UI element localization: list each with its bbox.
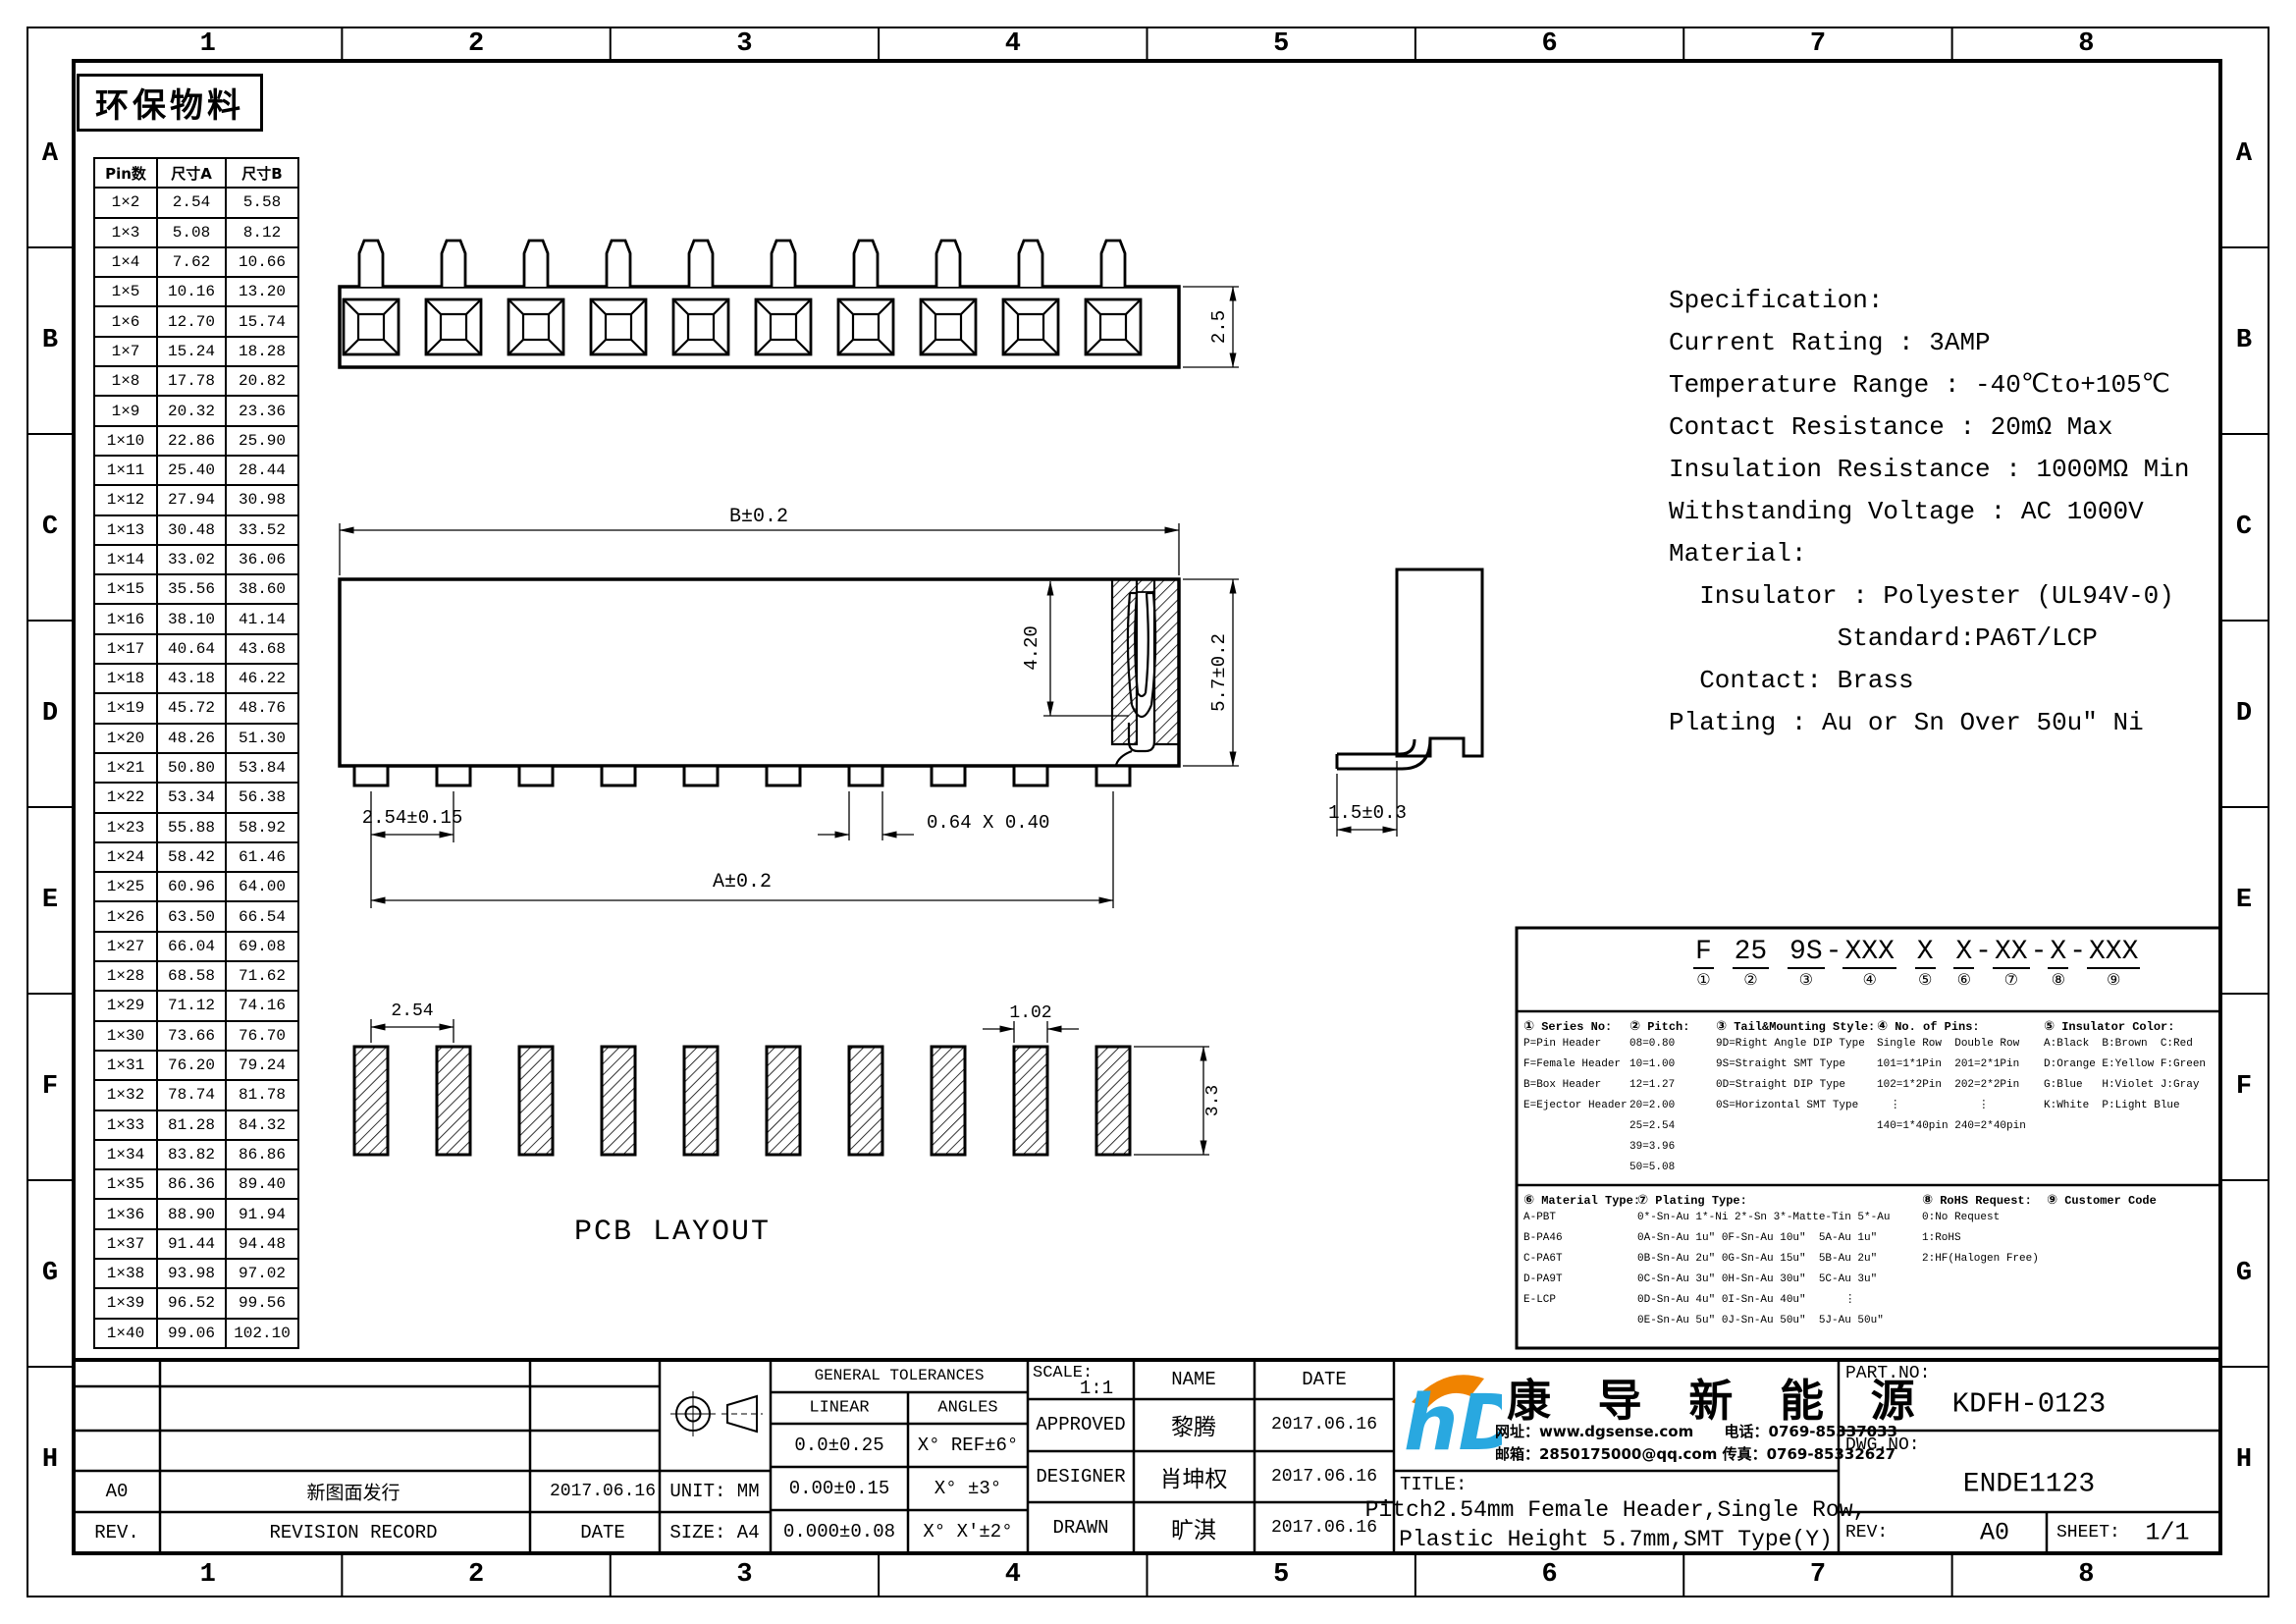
legend-line: 101=1*1Pin 201=2*1Pin [1877,1055,2026,1075]
table-cell: 83.82 [157,1140,226,1169]
legend-line: 20=2.00 [1629,1096,1689,1116]
unit-cell: UNIT: MM [669,1481,759,1502]
dim-pcb-pitch: 2.54 [391,1001,433,1021]
dim-pcb-pad-height: 3.3 [1203,1085,1223,1116]
zone-col-label: 3 [736,29,752,59]
legend-line: 0D=Straight DIP Type [1716,1075,1875,1096]
rev-label: REV: [1845,1523,1888,1543]
code-separator [1936,937,1954,967]
table-cell: 27.94 [157,485,226,514]
table-row: 1×3791.4494.48 [94,1229,298,1259]
table-cell: 53.34 [157,783,226,812]
linear-tolerance: 0.00±0.15 [789,1478,890,1499]
zone-col-label: 8 [2078,1560,2094,1590]
table-cell: 41.14 [226,604,298,633]
projection-symbol-icon [670,1391,763,1436]
rev-date-header: DATE [580,1522,625,1543]
pin-post [359,241,383,287]
dwg-no-value: ENDE1123 [1963,1470,2095,1500]
table-cell: 81.28 [157,1110,226,1140]
table-cell: 1×24 [94,842,157,872]
dwg-no-label: DWG.NO: [1845,1435,1920,1455]
table-cell: 46.22 [226,664,298,693]
circled-number-icon: ⑦ [1637,1193,1648,1208]
spec-line: Contact Resistance : 20mΩ Max [1669,406,2190,449]
pin-post [442,241,465,287]
table-cell: 78.74 [157,1080,226,1110]
table-cell: 88.90 [157,1199,226,1228]
linear-tolerance: 0.0±0.25 [794,1435,883,1456]
code-segment: X⑥ [1953,937,1974,989]
table-cell: 15.74 [226,306,298,336]
legend-section: ⑧ RoHS Request:0:No Request1:RoHS2:HF(Ha… [1922,1193,2039,1270]
zone-col-label: 7 [1810,1560,1826,1590]
table-cell: 1×20 [94,724,157,753]
table-cell: 5.58 [226,188,298,217]
table-row: 1×3893.9897.02 [94,1259,298,1288]
table-row: 1×1638.1041.14 [94,604,298,633]
code-segment-mark: ⑨ [2107,970,2120,989]
dim-front-depth: 4.20 [1021,625,1042,671]
table-row: 1×1330.4833.52 [94,515,298,545]
table-cell: 1×30 [94,1021,157,1051]
table-cell: 97.02 [226,1259,298,1288]
table-cell: 33.52 [226,515,298,545]
legend-line: 0D-Sn-Au 4u″ 0I-Sn-Au 40u″ ⋮ [1637,1290,1890,1311]
pin-table-header: 尺寸B [226,158,298,188]
code-segment-mark: ⑥ [1957,970,1971,989]
dim-front-pad: 0.64 X 0.40 [927,812,1049,834]
spec-line: Insulator : Polyester (UL94V-0) [1669,575,2190,618]
legend-line: 140=1*40pin 240=2*40pin [1877,1116,2026,1137]
table-cell: 1×7 [94,337,157,366]
table-cell: 1×5 [94,277,157,306]
table-cell: 28.44 [226,456,298,485]
table-cell: 1×11 [94,456,157,485]
table-cell: 1×40 [94,1319,157,1348]
table-row: 1×715.2418.28 [94,337,298,366]
circled-number-icon: ③ [1716,1019,1727,1034]
table-cell: 43.68 [226,634,298,664]
circled-number-icon: ⑥ [1523,1193,1534,1208]
table-cell: 23.36 [226,396,298,425]
dim-front-a: A±0.2 [713,871,772,893]
table-cell: 86.86 [226,1140,298,1169]
table-cell: 68.58 [157,961,226,991]
zone-row-label: A [2236,139,2252,169]
table-row: 1×2663.5066.54 [94,901,298,931]
table-row: 1×2458.4261.46 [94,842,298,872]
legend-section-title: ⑦ Plating Type: [1637,1193,1890,1208]
table-row: 1×3381.2884.32 [94,1110,298,1140]
table-cell: 1×4 [94,247,157,277]
dim-side-lead: 1.5±0.3 [1328,802,1407,824]
table-cell: 1×25 [94,872,157,901]
table-cell: 71.12 [157,991,226,1020]
legend-line: K:White P:Light Blue [2044,1096,2206,1116]
table-row: 1×817.7820.82 [94,366,298,396]
legend-line: 10=1.00 [1629,1055,1689,1075]
part-no-value: KDFH-0123 [1952,1388,2107,1421]
legend-line: D-PA9T [1523,1270,1640,1290]
table-cell: 30.98 [226,485,298,514]
code-separator: - [1825,937,1843,967]
code-separator: - [2068,937,2087,967]
table-cell: 1×35 [94,1169,157,1199]
table-cell: 1×16 [94,604,157,633]
table-cell: 33.02 [157,545,226,574]
code-segment: XX⑦ [1993,937,2030,989]
front-view: B±0.2 5.7±0.2 4.20 2.54±0.15 [340,506,1239,908]
table-row: 1×2868.5871.62 [94,961,298,991]
table-cell: 1×2 [94,188,157,217]
legend-section: ⑤ Insulator Color:A:Black B:Brown C:RedD… [2044,1019,2206,1116]
table-row: 1×3073.6676.70 [94,1021,298,1051]
drawing-title-line1: Pitch2.54mm Female Header,Single Row, [1365,1497,1867,1523]
circled-number-icon: ② [1629,1019,1640,1034]
legend-line: 0E-Sn-Au 5u″ 0J-Sn-Au 50u″ 5J-Au 50u″ [1637,1311,1890,1331]
section-wall-right [1154,579,1179,744]
pcb-pad [684,1047,718,1155]
zone-col-label: 2 [468,1560,484,1590]
legend-line: 0:No Request [1922,1208,2039,1228]
pcb-pad [849,1047,882,1155]
zone-row-label: H [42,1445,58,1475]
signoff-name: 肖坤权 [1160,1460,1228,1493]
zone-row-label: E [2236,886,2252,915]
specification-block: Specification:Current Rating : 3AMPTempe… [1669,280,2190,744]
legend-line: D:Orange E:Yellow F:Green [2044,1055,2206,1075]
table-cell: 1×29 [94,991,157,1020]
legend-section-title: ⑨ Customer Code [2047,1193,2157,1208]
legend-line: B=Box Header [1523,1075,1628,1096]
zone-col-label: 1 [200,29,216,59]
legend-line: A:Black B:Brown C:Red [2044,1034,2206,1055]
legend-line: G:Blue H:Violet J:Gray [2044,1075,2206,1096]
table-cell: 1×32 [94,1080,157,1110]
legend-line: 2:HF(Halogen Free) [1922,1249,2039,1270]
smt-pad [932,766,965,785]
table-row: 1×35.088.12 [94,218,298,247]
code-separator [1714,937,1733,967]
legend-section-title: ② Pitch: [1629,1019,1689,1034]
table-cell: 20.32 [157,396,226,425]
legend-section-title: ① Series No: [1523,1019,1628,1034]
pcb-pad [1014,1047,1047,1155]
legend-section-title: ⑤ Insulator Color: [2044,1019,2206,1034]
table-cell: 1×18 [94,664,157,693]
zone-col-label: 6 [1541,1560,1557,1590]
spec-line: Withstanding Voltage : AC 1000V [1669,491,2190,533]
smt-pad [684,766,718,785]
table-cell: 99.56 [226,1288,298,1318]
table-cell: 1×12 [94,485,157,514]
table-cell: 66.54 [226,901,298,931]
table-row: 1×2971.1274.16 [94,991,298,1020]
table-cell: 1×27 [94,932,157,961]
legend-line: 39=3.96 [1629,1137,1689,1158]
table-row: 1×1740.6443.68 [94,634,298,664]
linework-layer: 2.5 [0,0,2296,1624]
zone-row-label: D [2236,699,2252,729]
section-wall-left [1112,579,1137,744]
table-cell: 1×19 [94,693,157,723]
legend-line: C-PA6T [1523,1249,1640,1270]
smt-pad [767,766,800,785]
table-row: 1×3278.7481.78 [94,1080,298,1110]
legend-line: 9S=Straight SMT Type [1716,1055,1875,1075]
table-cell: 1×8 [94,366,157,396]
pin-post [1101,241,1125,287]
table-cell: 1×38 [94,1259,157,1288]
table-cell: 1×28 [94,961,157,991]
dim-top-height: 2.5 [1208,310,1230,344]
pin-post [524,241,548,287]
angle-tolerance: X° ±3° [934,1478,1001,1499]
legend-line: P=Pin Header [1523,1034,1628,1055]
top-view: 2.5 [340,241,1239,367]
table-cell: 1×37 [94,1229,157,1259]
pin-post [936,241,960,287]
table-cell: 43.18 [157,664,226,693]
company-contact-1: 网址：www.dgsense.com 电话：0769-85337033 [1495,1421,1897,1441]
spec-line: Temperature Range : -40℃to+105℃ [1669,364,2190,406]
table-row: 1×3688.9091.94 [94,1199,298,1228]
drawing-title-line2: Plastic Height 5.7mm,SMT Type(Y) [1399,1527,1833,1552]
table-cell: 35.56 [157,574,226,604]
code-segment-text: X [2048,937,2068,969]
pin-table-header: Pin数 [94,158,157,188]
pin-post [1019,241,1042,287]
revision-row-rev: A0 [106,1481,129,1502]
table-cell: 45.72 [157,693,226,723]
sheet-label: SHEET: [2056,1523,2120,1543]
table-cell: 48.76 [226,693,298,723]
table-row: 1×1227.9430.98 [94,485,298,514]
legend-line: 12=1.27 [1629,1075,1689,1096]
pcb-pad [354,1047,388,1155]
table-cell: 1×36 [94,1199,157,1228]
table-cell: 71.62 [226,961,298,991]
table-cell: 94.48 [226,1229,298,1259]
table-row: 1×1125.4028.44 [94,456,298,485]
revision-row-date: 2017.06.16 [550,1482,656,1501]
table-row: 1×1843.1846.22 [94,664,298,693]
table-cell: 93.98 [157,1259,226,1288]
smt-pad [519,766,553,785]
zone-row-label: G [2236,1259,2252,1288]
table-cell: 1×6 [94,306,157,336]
legend-section: ④ No. of Pins:Single Row Double Row101=1… [1877,1019,2026,1137]
code-segment-mark: ⑤ [1918,970,1932,989]
code-segment-text: 25 [1733,937,1770,969]
dim-front-pitch: 2.54±0.15 [362,807,463,829]
table-cell: 1×39 [94,1288,157,1318]
table-cell: 36.06 [226,545,298,574]
table-cell: 50.80 [157,753,226,783]
spec-line: Contact: Brass [1669,660,2190,702]
name-header: NAME [1171,1369,1216,1390]
table-cell: 7.62 [157,247,226,277]
table-cell: 69.08 [226,932,298,961]
logo-text: hD [1404,1380,1502,1467]
linear-tolerance: 0.000±0.08 [783,1521,895,1543]
code-segment: F① [1693,937,1714,989]
table-row: 1×2766.0469.08 [94,932,298,961]
table-cell: 86.36 [157,1169,226,1199]
table-cell: 2.54 [157,188,226,217]
spec-line: Insulation Resistance : 1000MΩ Min [1669,449,2190,491]
code-segment: X⑧ [2048,937,2068,989]
code-segment-text: XXX [2087,937,2140,969]
table-cell: 76.70 [226,1021,298,1051]
table-row: 1×3176.2079.24 [94,1051,298,1080]
table-cell: 1×33 [94,1110,157,1140]
zone-col-label: 5 [1273,29,1289,59]
legend-section-title: ③ Tail&Mounting Style: [1716,1019,1875,1034]
circled-number-icon: ④ [1877,1019,1888,1034]
table-cell: 25.40 [157,456,226,485]
signoff-role: DRAWN [1052,1517,1108,1539]
code-segment-text: F [1693,937,1714,969]
table-cell: 18.28 [226,337,298,366]
table-cell: 1×17 [94,634,157,664]
code-segment: XXX⑨ [2087,937,2140,989]
table-row: 1×1535.5638.60 [94,574,298,604]
table-cell: 66.04 [157,932,226,961]
table-cell: 58.92 [226,813,298,842]
zone-row-label: B [2236,326,2252,355]
table-cell: 1×3 [94,218,157,247]
code-segment-text: 9S [1788,937,1825,969]
table-row: 1×22.545.58 [94,188,298,217]
legend-line: 0C-Sn-Au 3u″ 0H-Sn-Au 30u″ 5C-Au 3u″ [1637,1270,1890,1290]
smt-pad [354,766,388,785]
code-segment: 9S③ [1788,937,1825,989]
zone-row-label: C [42,513,58,542]
code-segment-mark: ⑦ [2004,970,2018,989]
code-segment-mark: ③ [1799,970,1813,989]
dim-front-b: B±0.2 [729,506,788,528]
table-cell: 1×26 [94,901,157,931]
table-cell: 1×10 [94,426,157,456]
table-cell: 10.16 [157,277,226,306]
zone-row-label: G [42,1259,58,1288]
table-row: 1×3996.5299.56 [94,1288,298,1318]
zone-col-label: 2 [468,29,484,59]
legend-section-title: ⑥ Material Type: [1523,1193,1640,1208]
tolerances-header: GENERAL TOLERANCES [815,1367,985,1384]
legend-line: 08=0.80 [1629,1034,1689,1055]
spec-line: Material: [1669,533,2190,575]
pin-post [772,241,795,287]
pcb-layout-label: PCB LAYOUT [574,1216,771,1249]
pcb-pad [767,1047,800,1155]
revision-row-record: 新图面发行 [306,1479,400,1505]
table-cell: 96.52 [157,1288,226,1318]
table-cell: 55.88 [157,813,226,842]
table-cell: 25.90 [226,426,298,456]
table-row: 1×2355.8858.92 [94,813,298,842]
smt-pad [1014,766,1047,785]
table-cell: 1×23 [94,813,157,842]
legend-section-title: ④ No. of Pins: [1877,1019,2026,1034]
table-cell: 1×22 [94,783,157,812]
table-row: 1×3586.3689.40 [94,1169,298,1199]
code-segment-text: XX [1993,937,2030,969]
legend-line: 0*-Sn-Au 1*-Ni 2*-Sn 3*-Matte-Tin 5*-Au [1637,1208,1890,1228]
table-cell: 58.42 [157,842,226,872]
dim-front-total: 5.7±0.2 [1208,633,1230,712]
circled-number-icon: ⑤ [2044,1019,2055,1034]
code-segment: XXX④ [1842,937,1896,989]
table-row: 1×2150.8053.84 [94,753,298,783]
table-cell: 38.60 [226,574,298,604]
circled-number-icon: ⑨ [2047,1193,2057,1208]
legend-section: ⑥ Material Type:A-PBTB-PA46C-PA6TD-PA9TE… [1523,1193,1640,1311]
code-separator [1896,937,1915,967]
code-separator [1769,937,1788,967]
table-cell: 76.20 [157,1051,226,1080]
pcb-layout-view: 2.54 1.02 3.3 PCB LAYOUT [354,1001,1223,1249]
table-cell: 48.26 [157,724,226,753]
table-cell: 1×14 [94,545,157,574]
table-row: 1×3483.8286.86 [94,1140,298,1169]
code-segment-mark: ① [1696,970,1710,989]
legend-section: ① Series No:P=Pin HeaderF=Female HeaderB… [1523,1019,1628,1116]
legend-line: Single Row Double Row [1877,1034,2026,1055]
legend-section: ⑨ Customer Code [2047,1193,2157,1208]
signoff-date: 2017.06.16 [1271,1467,1377,1487]
table-cell: 79.24 [226,1051,298,1080]
pin-post [607,241,630,287]
table-cell: 73.66 [157,1021,226,1051]
scale-value: 1:1 [1080,1378,1113,1399]
spec-line: Current Rating : 3AMP [1669,322,2190,364]
legend-line: 102=1*2Pin 202=2*2Pin [1877,1075,2026,1096]
code-segment: X⑤ [1915,937,1936,989]
legend-line: 0B-Sn-Au 2u″ 0G-Sn-Au 15u″ 5B-Au 2u″ [1637,1249,1890,1270]
zone-col-label: 8 [2078,29,2094,59]
zone-row-label: C [2236,513,2252,542]
table-cell: 1×13 [94,515,157,545]
legend-line: ⋮ ⋮ [1877,1096,2026,1116]
table-cell: 84.32 [226,1110,298,1140]
table-cell: 64.00 [226,872,298,901]
table-cell: 61.46 [226,842,298,872]
spec-line: Standard:PA6T/LCP [1669,618,2190,660]
table-cell: 13.20 [226,277,298,306]
company-logo: hD [1404,1363,1502,1467]
table-cell: 30.48 [157,515,226,545]
code-segment-mark: ② [1743,970,1757,989]
zone-row-label: F [2236,1072,2252,1102]
signoff-date: 2017.06.16 [1271,1415,1377,1435]
linear-header: LINEAR [809,1399,869,1418]
part-number-code: F① 25② 9S③-XXX④ X⑤ X⑥-XX⑦-X⑧-XXX⑨ [1693,937,2140,989]
code-separator: - [1974,937,1993,967]
zone-col-label: 7 [1810,29,1826,59]
legend-section: ② Pitch:08=0.8010=1.0012=1.2720=2.0025=2… [1629,1019,1689,1178]
zone-col-label: 1 [200,1560,216,1590]
table-cell: 12.70 [157,306,226,336]
table-cell: 63.50 [157,901,226,931]
dim-pcb-pad-width: 1.02 [1009,1003,1051,1023]
zone-col-label: 4 [1005,1560,1021,1590]
circled-number-icon: ⑧ [1922,1193,1933,1208]
code-segment-mark: ⑧ [2052,970,2065,989]
signoff-name: 旷淇 [1171,1511,1216,1544]
